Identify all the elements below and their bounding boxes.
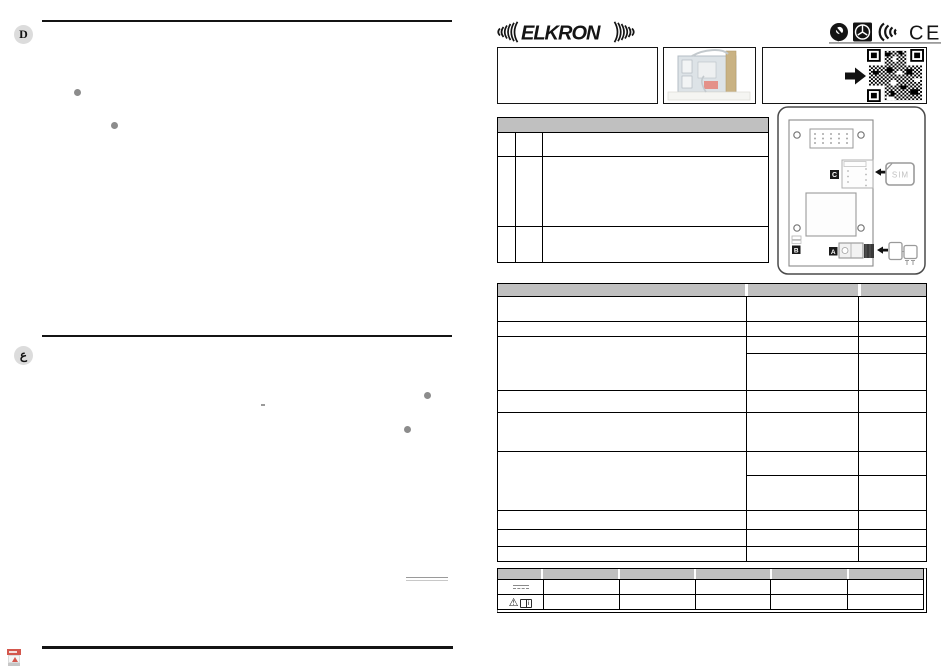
ratings-table: ⚠ i <box>497 568 927 613</box>
header-cell <box>696 569 770 579</box>
table-cell <box>498 511 747 529</box>
table-cell <box>695 580 771 594</box>
table-subrow <box>747 353 926 390</box>
product-title-box <box>497 47 658 104</box>
elkron-logo: ELKRON <box>496 19 636 45</box>
header-cell <box>620 569 694 579</box>
table-cell <box>498 547 747 561</box>
table-cell <box>498 391 747 412</box>
table-cell <box>747 354 859 390</box>
ce-mark: CE <box>909 23 941 45</box>
table-cell <box>770 580 847 594</box>
certification-marks: CE <box>829 20 941 45</box>
board-diagram: C SIM B A <box>776 105 927 276</box>
table-cell <box>847 595 924 611</box>
table-cell <box>543 595 619 611</box>
bullet-point <box>74 89 81 96</box>
qr-panel-box <box>762 47 927 104</box>
table-cell <box>859 297 926 321</box>
table-cell <box>747 413 859 451</box>
table-cell <box>859 413 926 451</box>
svg-text:A: A <box>831 249 836 256</box>
table-cell <box>859 511 926 529</box>
svg-text:B: B <box>794 247 799 254</box>
table-row <box>498 529 926 546</box>
table-cell <box>516 227 543 262</box>
specifications-table <box>497 283 927 562</box>
table-cell <box>543 227 768 262</box>
table-subcolumn <box>747 452 926 510</box>
table-row <box>498 296 926 321</box>
right-arrow-icon <box>845 66 866 86</box>
table-cell <box>619 580 695 594</box>
bullet-point <box>111 122 118 129</box>
svg-text:C: C <box>832 172 837 179</box>
table-row <box>498 336 926 390</box>
header-cell <box>861 284 926 296</box>
label-b-badge: B <box>792 246 801 255</box>
pdf-icon-footer <box>8 663 20 666</box>
dc-voltage-icon <box>513 585 529 589</box>
table-cell <box>543 133 768 157</box>
language-badge-german-letter: D <box>19 27 28 42</box>
header-cell <box>772 569 847 579</box>
table-subrow <box>747 452 926 475</box>
table-cell <box>516 157 543 227</box>
table-cell <box>516 133 543 157</box>
qr-code <box>867 49 924 102</box>
section-ar-top-rule <box>42 335 452 337</box>
table-cell <box>619 595 695 611</box>
table-cell <box>747 337 859 353</box>
language-badge-arabic-letter: ع <box>20 348 27 363</box>
language-badge-arabic: ع <box>14 346 33 365</box>
pdf-icon-page <box>8 655 20 663</box>
header-cell <box>543 569 618 579</box>
table-row <box>498 412 926 451</box>
table-cell <box>543 580 619 594</box>
table-cell <box>498 157 516 227</box>
signature-line <box>406 577 448 581</box>
approval-swirl-icon <box>830 23 848 42</box>
bullet-point <box>404 426 411 433</box>
bullet-point <box>424 392 431 399</box>
table-cell <box>747 530 859 546</box>
components-table-header <box>498 118 768 133</box>
manual-page: D ع ELKRON <box>0 0 950 672</box>
table-cell: ⚠ i <box>498 595 543 611</box>
table-cell <box>859 337 926 353</box>
components-table <box>497 117 769 263</box>
pin-header-icon <box>810 129 853 148</box>
table-cell <box>859 476 926 510</box>
manual-book-icon: i <box>520 599 532 608</box>
table-cell <box>498 580 543 594</box>
table-cell <box>498 322 747 336</box>
radio-waves-icon <box>880 24 896 41</box>
table-cell <box>770 595 847 611</box>
hyphen-mark <box>261 404 265 406</box>
table-cell <box>498 530 747 546</box>
sim-card-icon: SIM <box>886 163 914 185</box>
table-cell <box>498 227 516 262</box>
language-badge-german: D <box>14 25 33 44</box>
table-subrow <box>747 475 926 510</box>
table-cell <box>498 133 516 157</box>
table-cell <box>498 452 747 510</box>
section-d-top-rule <box>42 20 452 22</box>
label-c-badge: C <box>830 170 839 179</box>
ratings-table-header <box>498 569 923 579</box>
table-row <box>498 390 926 412</box>
table-cell <box>747 322 859 336</box>
security-square-icon <box>853 23 872 42</box>
header-cell <box>498 569 541 579</box>
table-subrow <box>747 337 926 353</box>
logo-left-waves-icon <box>498 22 517 42</box>
table-row <box>498 546 926 561</box>
table-cell <box>859 391 926 412</box>
product-photo-box <box>663 47 756 104</box>
table-cell <box>747 297 859 321</box>
table-cell <box>847 580 924 594</box>
table-cell <box>747 476 859 510</box>
table-cell <box>498 297 747 321</box>
product-photo <box>664 48 754 102</box>
table-cell <box>498 413 747 451</box>
table-row <box>498 579 923 594</box>
table-subcolumn <box>747 337 926 390</box>
table-cell <box>859 530 926 546</box>
cert-underline <box>829 43 941 44</box>
table-cell <box>859 322 926 336</box>
components-table-body <box>498 133 768 262</box>
table-cell <box>747 391 859 412</box>
table-row <box>498 321 926 336</box>
warning-triangle-icon: ⚠ <box>509 598 519 609</box>
header-cell <box>748 284 858 296</box>
svg-text:SIM: SIM <box>892 171 909 180</box>
specifications-table-body <box>498 296 926 561</box>
table-cell <box>747 452 859 475</box>
table-cell <box>498 337 747 390</box>
antenna-socket-icon <box>839 243 874 258</box>
table-row <box>498 451 926 510</box>
table-cell <box>859 452 926 475</box>
table-cell <box>747 547 859 561</box>
table-row: ⚠ i <box>498 594 923 611</box>
table-cell <box>695 595 771 611</box>
table-cell <box>859 547 926 561</box>
table-cell <box>543 157 768 227</box>
module-shield-outline <box>806 193 856 236</box>
logo-wordmark: ELKRON <box>521 23 601 45</box>
page-bottom-rule <box>42 646 453 649</box>
table-row <box>498 510 926 529</box>
logo-right-waves-icon <box>615 22 634 42</box>
label-a-badge: A <box>829 247 838 256</box>
specifications-table-header <box>498 284 926 296</box>
table-cell <box>747 511 859 529</box>
header-cell <box>849 569 923 579</box>
table-cell <box>859 354 926 390</box>
pdf-file-icon <box>7 649 21 666</box>
header-cell <box>498 284 745 296</box>
sim-holder-icon <box>842 160 873 188</box>
